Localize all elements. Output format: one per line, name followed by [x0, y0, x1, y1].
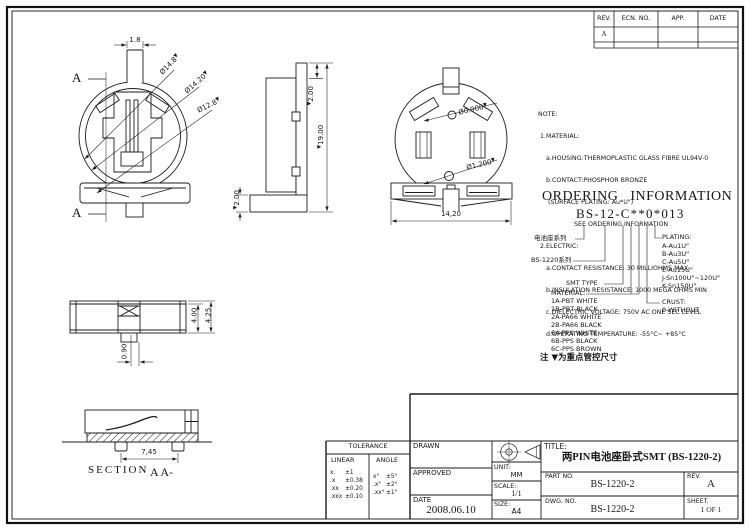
material-option: 2B-PA66 BLACK — [551, 322, 602, 329]
tolerance-title: TOLERANCE — [328, 443, 408, 450]
plating-option: E-Au15U" — [662, 267, 693, 274]
crust-option: 0-WITHOUT — [662, 307, 699, 314]
drawn-label: DRAWN — [413, 443, 440, 450]
critical-dim-marker: ▼ — [490, 157, 495, 164]
dim-profile-body-height: 4.00 — [192, 303, 199, 329]
ordering-title: ORDERING INFORMATION — [542, 190, 732, 204]
rev-table-header-app: APP. — [658, 16, 698, 22]
ordering-crust-label: CRUST: — [662, 299, 685, 306]
rev-table-header-ecn: ECN. NO. — [616, 16, 656, 22]
section-cut-label-bottom: A — [72, 206, 81, 219]
size-value: A4 — [492, 508, 541, 516]
rev-table-header-date: DATE — [698, 16, 738, 22]
material-option: 1B-PBT BLACK — [551, 306, 598, 313]
tolerance-angle-row: x°±5° — [373, 475, 397, 481]
note-line: NOTE: — [538, 111, 708, 118]
ordering-code: BS-12-C**0*013 — [576, 207, 685, 220]
material-option: 6C-PPS BROWN — [551, 346, 601, 353]
plating-option: C-Au5U" — [662, 259, 689, 266]
material-option: 6A-PPS WHITE — [551, 330, 597, 337]
drawing-title: 两PIN电池座卧式SMT (BS-1220-2) — [545, 453, 738, 464]
approved-label: APPROVED — [413, 470, 451, 477]
dim-base-width: 14,20 — [429, 211, 473, 218]
ordering-series-label: 电池座系列 — [534, 235, 567, 242]
dim-profile-total-height: 4.25 — [206, 303, 213, 329]
title-label: TITLE: — [544, 443, 567, 451]
rev-value: A — [684, 479, 738, 490]
critical-dim-marker: ▼ — [316, 145, 322, 149]
critical-dim-marker: ▼ — [306, 102, 312, 106]
control-dimension-note: 注 ▼为重点管控尺寸 — [540, 354, 618, 363]
tolerance-angle-label: ANGLE — [376, 457, 398, 464]
plating-option: B-Au3U" — [662, 251, 689, 258]
dim-pin-pitch: 7,45 — [134, 449, 164, 456]
section-view-subtitle: A A- — [150, 466, 173, 478]
unit-label: UNIT: — [494, 465, 510, 471]
ordering-smt-label: SMT TYPE — [566, 280, 598, 287]
tolerance-linear-row: .x±0.38 — [330, 479, 363, 485]
material-option: 2A-PA66 WHITE — [551, 314, 601, 321]
view-front-linework — [391, 68, 512, 225]
plating-option: A-Au1U" — [662, 243, 689, 250]
rev-table-value: A — [594, 31, 614, 38]
unit-value: MM — [492, 472, 541, 479]
tolerance-linear-row: .xx±0.20 — [330, 487, 363, 493]
note-line: b.CONTACT:PHOSPHOR BRONZE — [538, 177, 708, 184]
tolerance-angle-row: .xx°±1° — [373, 491, 397, 497]
sheet-value: 1 OF 1 — [684, 506, 738, 514]
section-cut-label-top: A — [72, 71, 81, 84]
critical-dim-marker: ▼ — [482, 102, 487, 109]
tolerance-angle-row: .x°±2° — [373, 483, 397, 489]
view-top-linework — [79, 41, 212, 222]
section-view-title: SECTION — [88, 465, 148, 476]
ordering-plating-label: PLATING: — [662, 234, 692, 241]
tolerance-linear-row: x.±1 — [330, 471, 354, 477]
tolerance-linear-label: LINEAR — [331, 457, 354, 464]
note-line: SEE ORDERING INFORMATION — [538, 221, 708, 228]
date-label: DATE — [413, 497, 431, 504]
dwg-no-value: BS-1220-2 — [555, 505, 670, 515]
plating-option: J-Sn100U"~120U" — [662, 275, 720, 282]
material-option: 1A-PBT WHITE — [551, 298, 598, 305]
date-value: 2008.06.10 — [412, 505, 490, 516]
drawing-sheet: REV. ECN. NO. APP. DATE A 1.8 Ø14.8▼ Ø14… — [0, 0, 750, 530]
material-option: 6B-PPS BLACK — [551, 338, 597, 345]
part-no-value: BS-1220-2 — [555, 480, 670, 490]
dim-top-thickness: ▼2.00 — [307, 83, 315, 109]
note-line: 1.MATERIAL: — [538, 133, 708, 140]
plating-option: K-Sn150U" — [662, 283, 696, 290]
scale-value: 1/1 — [492, 490, 541, 498]
dim-stem-width: 1.8 — [120, 37, 150, 44]
note-line: a.HOUSING:THERMOPLASTIC GLASS FIBRE UL94… — [538, 155, 708, 162]
rev-table-header-rev: REV. — [590, 16, 618, 22]
critical-dim-marker: ▼ — [232, 206, 238, 210]
ordering-material-label: MATERIAL: — [551, 290, 585, 297]
projection-symbol-icon — [497, 440, 540, 464]
ordering-family-label: BS-1220系列 — [531, 257, 571, 264]
dim-profile-offset: 0.90 — [122, 339, 129, 365]
tolerance-linear-row: .xxx±0.10 — [330, 495, 363, 501]
dim-total-height: ▼19.00 — [317, 121, 325, 153]
dim-base-thickness: ▼2.00 — [233, 187, 241, 213]
